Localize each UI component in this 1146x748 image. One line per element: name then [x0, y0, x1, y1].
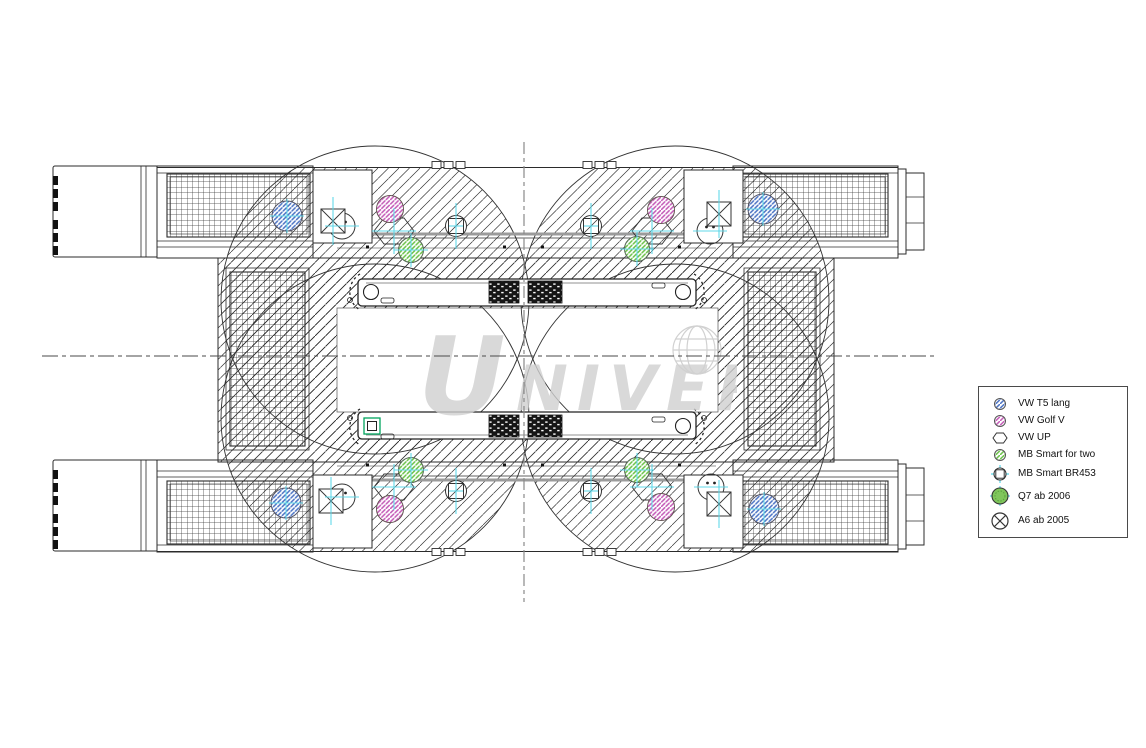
- legend-label: VW Golf V: [1018, 415, 1065, 426]
- legend-item-mb-smart-br453: MB Smart BR453: [989, 463, 1123, 484]
- legend-label: A6 ab 2005: [1018, 515, 1069, 526]
- runway-top: [348, 274, 707, 310]
- approach-plates: [53, 166, 158, 551]
- symbol-vw-golf-wheel: [377, 496, 404, 523]
- legend-label: VW T5 lang: [1018, 398, 1070, 409]
- legend-item-mb-smart-fortwo: MB Smart for two: [989, 446, 1123, 463]
- circle-solid-green-icon: [989, 485, 1011, 507]
- legend-item-q7: Q7 ab 2006: [989, 484, 1123, 509]
- watermark-letters: NIVERSAL: [516, 352, 933, 425]
- circle-square-crosshair-icon: [989, 463, 1011, 485]
- legend-label: MB Smart for two: [1018, 449, 1095, 460]
- cad-plan-drawing: U NIVERSAL: [0, 0, 1146, 748]
- legend-label: Q7 ab 2006: [1018, 491, 1070, 502]
- vehicle-legend: VW T5 lang VW Golf V VW UP MB Smart for …: [978, 386, 1128, 538]
- circle-x-icon: [989, 510, 1011, 532]
- legend-label: VW UP: [1018, 432, 1051, 443]
- legend-label: MB Smart BR453: [1018, 468, 1096, 479]
- legend-item-a6: A6 ab 2005: [989, 509, 1123, 534]
- technical-drawing-page: U NIVERSAL VW T5 lang VW Golf V: [0, 0, 1146, 748]
- symbol-vw-golf-wheel: [377, 196, 404, 223]
- watermark-letter-u: U: [418, 315, 506, 440]
